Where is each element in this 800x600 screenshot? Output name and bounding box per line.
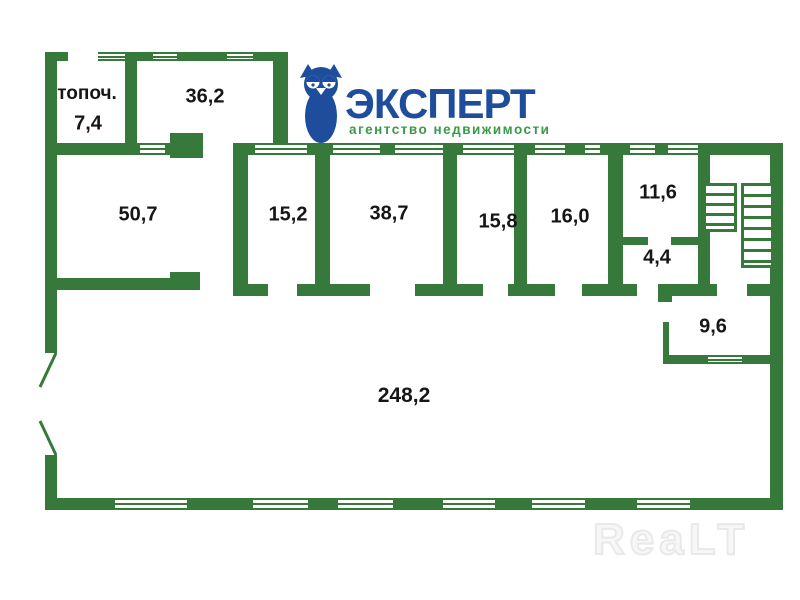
door-swing-icon xyxy=(36,349,60,459)
wall-segment xyxy=(742,355,783,364)
room-area-label-248-2: 248,2 xyxy=(378,384,431,408)
wall-stub xyxy=(658,296,672,302)
wall-segment xyxy=(508,284,555,296)
window xyxy=(338,498,393,510)
wall-segment xyxy=(187,498,253,510)
logo-subtitle: агентство недвижимости xyxy=(349,122,550,137)
window xyxy=(637,498,690,510)
wall-segment xyxy=(248,284,268,296)
wall-segment xyxy=(273,52,288,150)
window xyxy=(140,143,165,155)
realt-watermark: ReaLT xyxy=(593,515,749,565)
wall-partition xyxy=(443,143,457,296)
window xyxy=(253,498,308,510)
wall-segment xyxy=(690,498,783,510)
wall-segment xyxy=(125,52,137,155)
wall-segment xyxy=(415,284,483,296)
wall-segment xyxy=(45,52,57,155)
chimney-block xyxy=(170,272,200,290)
wall-partition xyxy=(608,143,623,296)
staircase-flight-right xyxy=(741,183,771,268)
wall-segment xyxy=(45,278,170,290)
wall-segment xyxy=(45,155,57,353)
window xyxy=(98,52,125,61)
room-area-label-topoch: 7,4 xyxy=(74,113,102,136)
window xyxy=(463,143,515,155)
wall-segment xyxy=(582,284,637,296)
wall-segment xyxy=(308,498,338,510)
window xyxy=(708,355,742,364)
wall-segment xyxy=(177,52,227,61)
room-area-label-4-4: 4,4 xyxy=(643,247,671,270)
wall-segment xyxy=(495,498,532,510)
wall-segment xyxy=(165,143,171,155)
window xyxy=(115,498,187,510)
logo-title: ЭКСПЕРТ xyxy=(345,80,535,128)
window xyxy=(630,143,655,155)
wall-segment xyxy=(297,284,370,296)
wall-segment xyxy=(380,143,395,155)
floor-plan: топоч. 7,4 36,2 50,7 15,2 38,7 15,8 16,0… xyxy=(0,0,800,600)
wall-segment xyxy=(747,284,783,296)
wall-segment xyxy=(663,355,708,364)
wall-segment xyxy=(770,143,783,510)
room-area-label-50-7: 50,7 xyxy=(119,204,158,227)
wall-segment xyxy=(45,498,115,510)
window xyxy=(585,143,600,155)
window xyxy=(532,498,585,510)
room-area-label-16-0: 16,0 xyxy=(551,206,590,229)
chimney-block xyxy=(170,133,203,158)
wall-segment xyxy=(585,498,637,510)
wall-segment xyxy=(655,143,668,155)
room-area-label-15-8: 15,8 xyxy=(479,211,518,234)
owl-icon xyxy=(294,62,348,144)
window xyxy=(333,143,380,155)
room-area-label-36-2: 36,2 xyxy=(186,86,225,109)
room-area-label-38-7: 38,7 xyxy=(370,203,409,226)
wall-partition xyxy=(315,143,330,296)
wall-segment xyxy=(658,284,717,296)
room-area-label-11-6: 11,6 xyxy=(639,182,677,205)
window xyxy=(535,143,565,155)
wall-segment xyxy=(671,237,703,245)
window xyxy=(227,52,253,61)
room-name-label-topoch: топоч. xyxy=(57,83,117,105)
window xyxy=(255,143,307,155)
wall-segment xyxy=(45,52,68,61)
staircase-flight-left xyxy=(703,183,737,232)
wall-segment xyxy=(617,237,648,245)
wall-segment xyxy=(565,143,585,155)
window xyxy=(668,143,698,155)
window xyxy=(443,498,495,510)
window xyxy=(153,52,177,61)
wall-segment xyxy=(393,498,443,510)
wall-segment xyxy=(45,143,140,155)
window xyxy=(395,143,443,155)
wall-segment xyxy=(137,52,153,61)
room-area-label-9-6: 9,6 xyxy=(699,316,727,339)
room-area-label-15-2: 15,2 xyxy=(269,204,308,227)
wall-partition xyxy=(233,143,248,296)
